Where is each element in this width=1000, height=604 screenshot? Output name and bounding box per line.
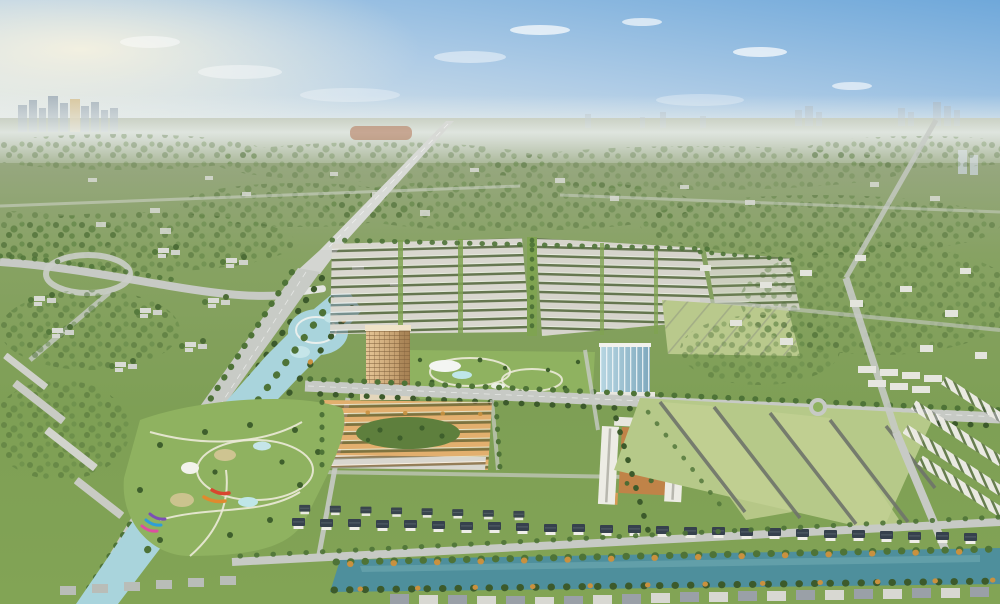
aerial-render-image xyxy=(0,0,1000,604)
